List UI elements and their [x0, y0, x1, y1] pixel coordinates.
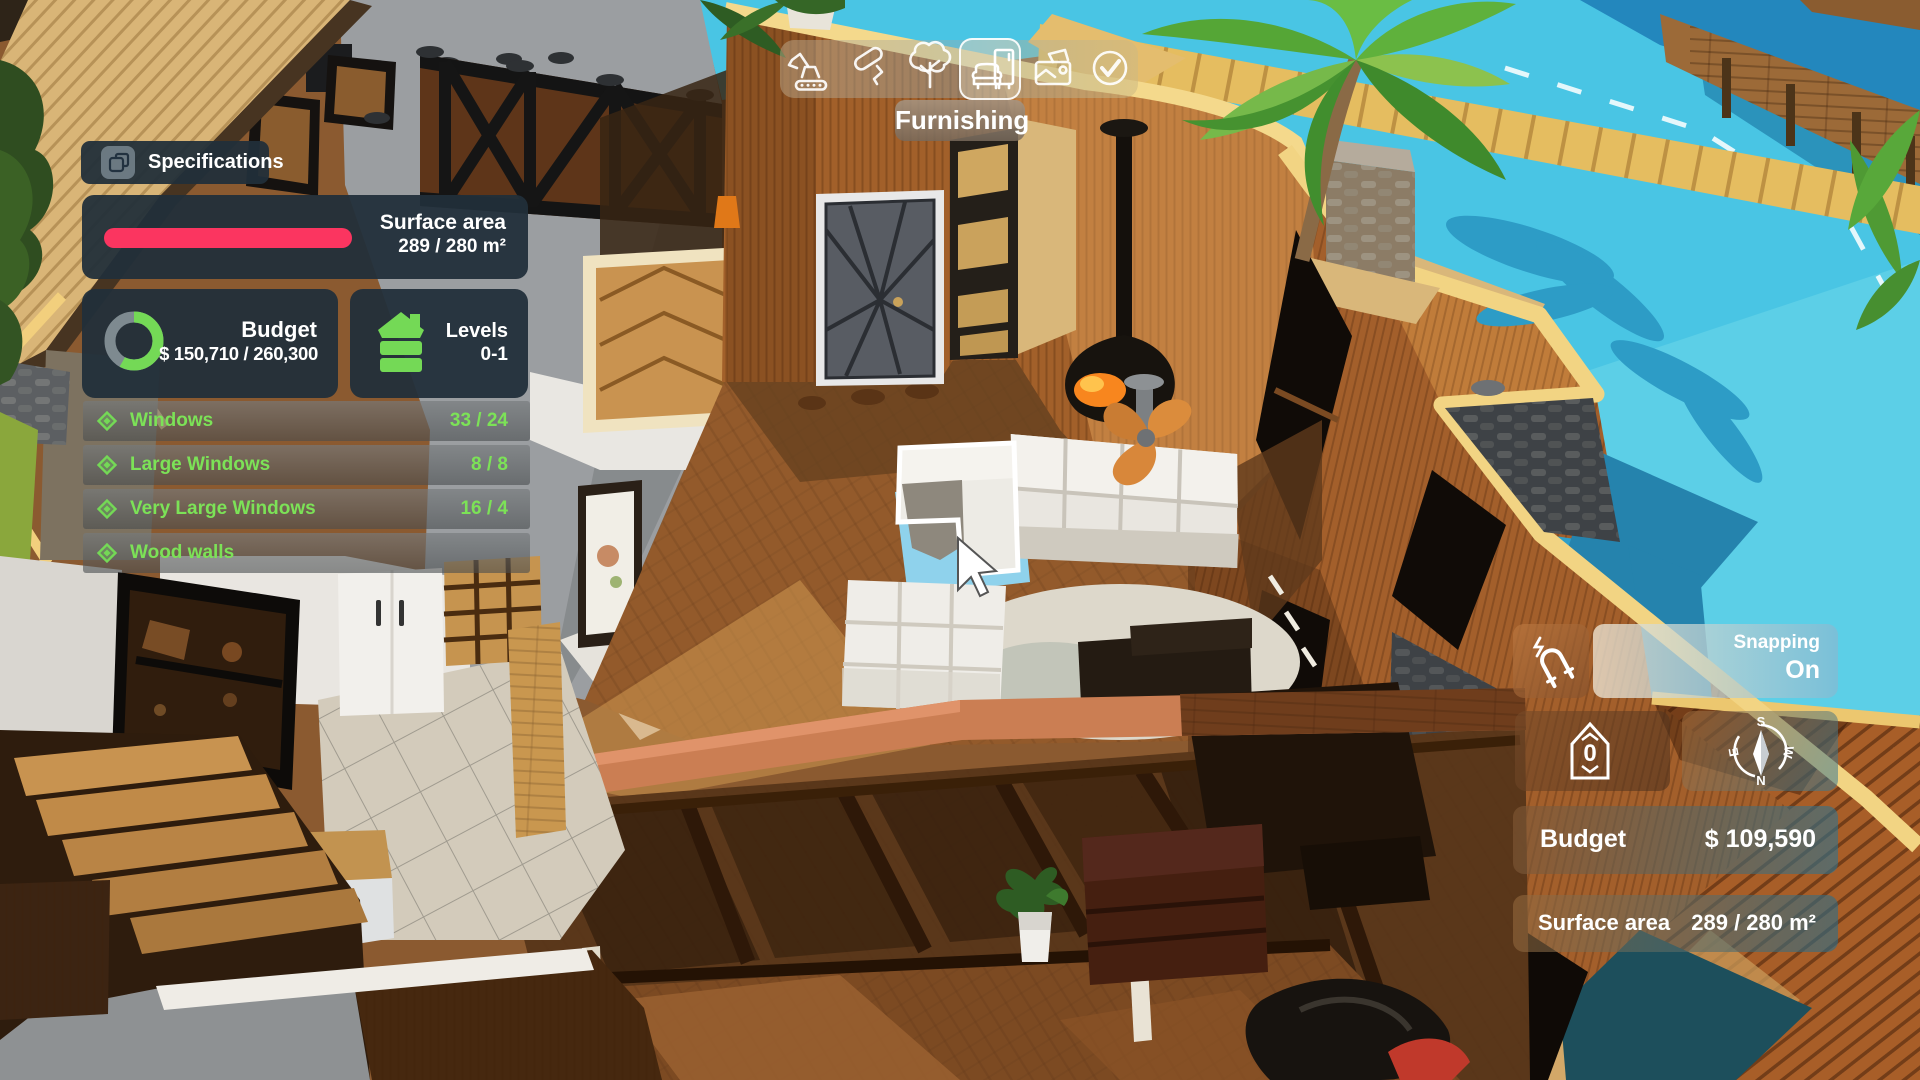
svg-text:S: S	[1757, 716, 1766, 729]
svg-text:E: E	[1728, 746, 1742, 757]
svg-text:0: 0	[1583, 740, 1596, 767]
svg-text:W: W	[1780, 745, 1794, 760]
